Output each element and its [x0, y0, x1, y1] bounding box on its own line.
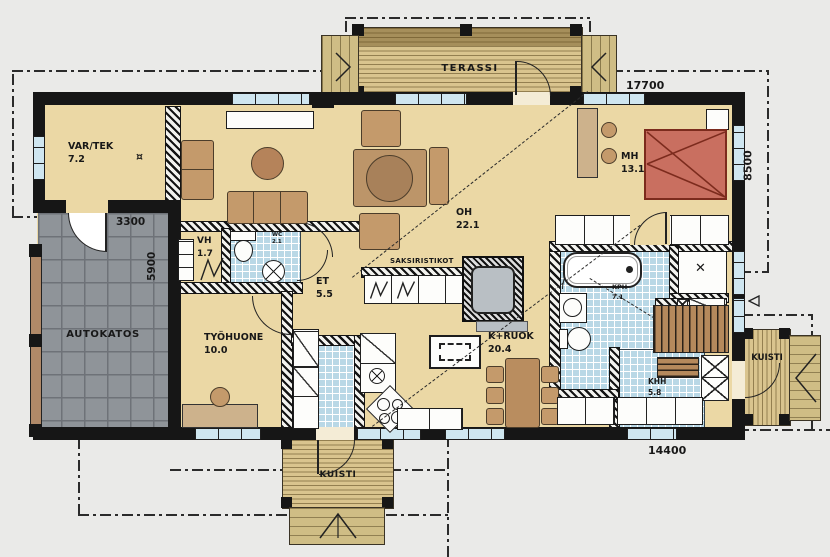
window: [584, 94, 644, 104]
room-label-khh: KHH 5.8: [648, 376, 666, 399]
room-name: TYÖHUONE: [204, 331, 263, 344]
dim-carport-width: 3300: [116, 217, 145, 228]
kitchen-counter: [398, 409, 462, 429]
window: [196, 429, 260, 439]
sofa-small: [429, 147, 449, 205]
stool: [210, 387, 230, 407]
porch-post: [281, 497, 292, 508]
toilet-tank: [560, 330, 567, 348]
room-name: K+RUOK: [488, 330, 534, 343]
door-opening: [732, 361, 745, 399]
vestibule-floor: [318, 344, 356, 428]
dining-table: [505, 358, 540, 428]
room-label-wc: WC 2.1: [272, 232, 282, 246]
dining-chair: [541, 408, 559, 425]
washer-icon: [702, 356, 728, 378]
burner-icon: [378, 399, 389, 410]
stool: [601, 122, 617, 138]
room-label-kuisti-east: KUISTI: [744, 354, 790, 363]
utility-bench: [558, 398, 614, 424]
room-label-et: ET 5.5: [316, 275, 333, 302]
vh-shelf: [179, 240, 193, 280]
toilet-tank: [231, 232, 255, 240]
dim-overall-depth: 8500: [743, 144, 754, 188]
terrace-post: [352, 24, 364, 36]
dining-round-table: [366, 155, 413, 202]
double-bed: [644, 129, 727, 200]
staircase: [654, 306, 728, 352]
bedroom-desk: [577, 108, 598, 178]
fireplace-core: [471, 266, 515, 314]
steps-direction-chevron-icon: [792, 352, 818, 404]
dim-body-width: 14400: [648, 445, 686, 456]
door-leaf: [105, 213, 107, 251]
dining-chair: [486, 408, 504, 425]
room-area: 20.4: [488, 343, 534, 356]
room-name: KHH: [648, 376, 666, 387]
coat-rack-icon: [396, 280, 416, 300]
fridge: [361, 334, 395, 363]
toilet-bowl-icon: [568, 328, 590, 350]
chimney-pier: [312, 92, 334, 108]
dim-overall-width: 17700: [626, 80, 664, 91]
staircase-landing: [658, 358, 698, 377]
room-label-vartek: VAR/TEK 7.2: [68, 140, 113, 167]
dryer-icon: [702, 378, 728, 400]
eave-line: [78, 437, 80, 515]
room-area: 5.8: [648, 387, 666, 398]
dining-chair: [541, 387, 559, 404]
terassi-eave: [345, 17, 590, 19]
terrace-post: [460, 24, 472, 36]
room-name: OH: [456, 206, 479, 219]
interior-wall: [670, 246, 678, 296]
dining-chair: [486, 387, 504, 404]
dining-chair: [486, 366, 504, 383]
room-name: VAR/TEK: [68, 140, 113, 153]
coffee-table: [251, 147, 284, 180]
window: [734, 252, 744, 294]
room-name: MH: [621, 150, 644, 163]
sideboard: [227, 112, 313, 128]
carport-post: [29, 244, 42, 257]
faucet-icon: [626, 266, 633, 273]
room-name: ET: [316, 275, 333, 288]
interior-wall: [166, 107, 180, 200]
sauna-stove-icon: ✕: [695, 261, 706, 276]
eave-line: [12, 216, 38, 218]
room-label-terassi: TERASSI: [358, 64, 582, 74]
wall-spine: [168, 200, 181, 440]
porch-post: [779, 328, 790, 339]
entrance-arrow-icon: [748, 295, 760, 307]
room-label-autokatos: AUTOKATOS: [38, 330, 168, 340]
wardrobe: [294, 368, 318, 396]
stool: [601, 148, 617, 164]
room-name: KPH: [612, 283, 627, 293]
bed-cover-lines: [646, 131, 725, 198]
window: [628, 429, 676, 439]
room-area: 2.1: [272, 239, 282, 246]
room-name: WC: [272, 232, 282, 239]
eave-line: [447, 430, 449, 557]
eave-line: [12, 70, 14, 217]
window: [446, 429, 504, 439]
room-name: VH: [197, 235, 213, 248]
dimension-line-8500: [767, 70, 769, 273]
window: [734, 299, 744, 332]
kitchen-sink-icon: [369, 368, 385, 384]
eave-line: [742, 314, 812, 316]
floor-drain-icon: ¤: [136, 150, 143, 163]
steps-direction-chevron-icon: [590, 52, 608, 82]
coat-rack-icon: [369, 280, 389, 300]
dim-carport-depth: 5900: [147, 244, 158, 288]
window: [34, 137, 44, 179]
eave-line: [78, 514, 448, 516]
armchair: [361, 110, 401, 147]
truss-note: SAKSIRISTIKOT: [390, 258, 454, 265]
room-area: 10.0: [204, 344, 263, 357]
room-label-kuisti-south: KUISTI: [283, 471, 393, 480]
window: [233, 94, 309, 104]
sofa-cushion-line: [280, 192, 281, 223]
coat-rack-icon: [199, 256, 225, 282]
porch-post: [382, 497, 393, 508]
room-label-mh: MH 13.1: [621, 150, 644, 177]
room-area: 22.1: [456, 219, 479, 232]
room-label-tyohuone: TYÖHUONE 10.0: [204, 331, 263, 358]
work-desk: [182, 404, 258, 428]
loveseat-cushion-line: [182, 169, 213, 170]
eave-line: [12, 70, 345, 72]
room-area: 7.2: [68, 153, 113, 166]
door-opening: [316, 427, 354, 440]
window: [396, 94, 466, 104]
nightstand: [707, 110, 728, 129]
island-inner: [439, 343, 471, 361]
dining-chair: [541, 366, 559, 383]
eave-line: [590, 70, 768, 72]
room-area: 5.5: [316, 288, 333, 301]
steps-direction-chevron-icon: [318, 510, 358, 540]
terrace-post: [570, 24, 582, 36]
wardrobe: [294, 332, 318, 366]
steps-direction-chevron-icon: [334, 52, 352, 82]
room-area: 13.1: [621, 163, 644, 176]
sofa: [227, 191, 308, 224]
porch-post: [779, 414, 790, 425]
floor-plan: TERASSI KUISTI KUISTI: [0, 0, 830, 557]
sofa-cushion-line: [253, 192, 254, 223]
door-opening: [66, 200, 108, 213]
washing-machine-drum-icon: [564, 299, 581, 316]
room-label-oh: OH 22.1: [456, 206, 479, 233]
utility-bench: [618, 398, 702, 424]
eave-line: [738, 429, 830, 431]
sink-icon: [262, 260, 285, 283]
